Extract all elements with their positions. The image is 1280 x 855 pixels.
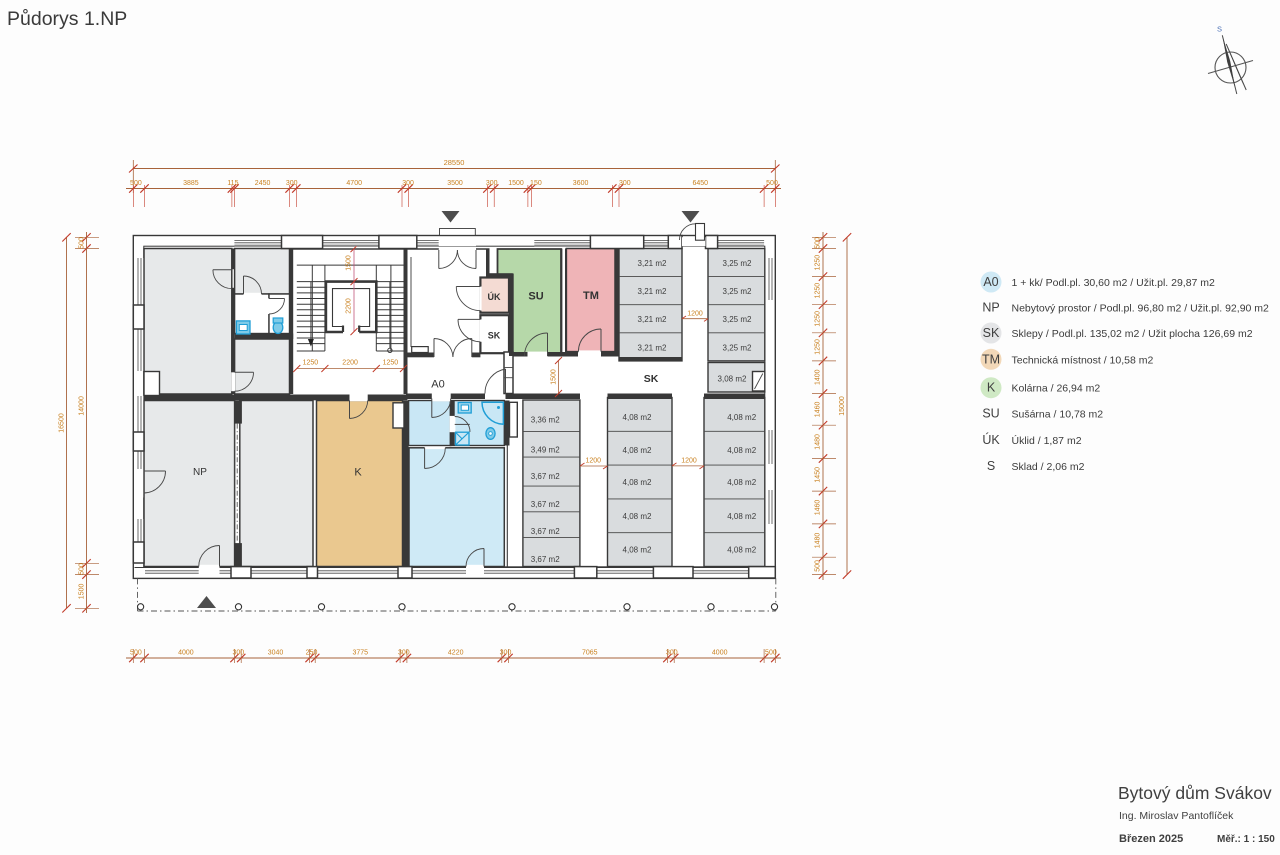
svg-text:Technická místnost / 10,58 m2: Technická místnost / 10,58 m2 [1012,354,1154,366]
svg-text:1250: 1250 [383,360,399,367]
svg-text:ÚK: ÚK [982,432,1000,447]
svg-text:3,25 m2: 3,25 m2 [723,343,752,352]
svg-text:Sklad / 2,06 m2: Sklad / 2,06 m2 [1012,461,1085,473]
svg-text:Nebytový prostor / Podl.pl. 96: Nebytový prostor / Podl.pl. 96,80 m2 / U… [1012,302,1270,314]
svg-text:1200: 1200 [687,311,703,318]
svg-text:250: 250 [306,650,318,657]
svg-text:Sklepy / Podl.pl. 135,02 m2 /: Sklepy / Podl.pl. 135,02 m2 / Užit ploch… [1012,328,1253,340]
svg-text:3,21 m2: 3,21 m2 [638,315,667,324]
svg-text:500: 500 [815,237,822,249]
svg-text:Půdorys 1.NP: Půdorys 1.NP [7,8,127,30]
svg-text:1250: 1250 [815,283,822,299]
svg-text:3,67 m2: 3,67 m2 [531,472,560,481]
svg-text:14000: 14000 [79,396,86,416]
svg-text:4000: 4000 [178,650,194,657]
svg-text:SU: SU [528,291,543,303]
svg-text:4,08 m2: 4,08 m2 [727,413,756,422]
svg-text:A0: A0 [983,275,998,289]
svg-text:Bytový dům Svákov: Bytový dům Svákov [1118,783,1272,803]
svg-text:300: 300 [500,650,512,657]
svg-text:Ing. Miroslav Pantoflíček: Ing. Miroslav Pantoflíček [1119,810,1234,822]
svg-text:1500: 1500 [551,369,558,385]
svg-text:500: 500 [766,180,778,187]
svg-text:500: 500 [130,180,142,187]
svg-text:4,08 m2: 4,08 m2 [727,512,756,521]
svg-text:Měř.: 1 : 150: Měř.: 1 : 150 [1217,834,1275,845]
svg-text:1450: 1450 [815,467,822,483]
svg-text:1500: 1500 [79,584,86,600]
svg-text:3,36 m2: 3,36 m2 [531,415,560,424]
svg-text:4,08 m2: 4,08 m2 [623,413,652,422]
svg-text:3,67 m2: 3,67 m2 [531,527,560,536]
svg-text:3,67 m2: 3,67 m2 [531,555,560,564]
svg-text:4,08 m2: 4,08 m2 [727,446,756,455]
svg-text:Kolárna / 26,94 m2: Kolárna / 26,94 m2 [1012,383,1101,395]
svg-text:3,25 m2: 3,25 m2 [723,259,752,268]
svg-text:4000: 4000 [712,650,728,657]
svg-text:1480: 1480 [815,533,822,549]
svg-text:3,21 m2: 3,21 m2 [638,343,667,352]
svg-text:SK: SK [983,326,1000,340]
svg-text:4,08 m2: 4,08 m2 [727,545,756,554]
svg-text:3,21 m2: 3,21 m2 [638,259,667,268]
svg-text:300: 300 [402,180,414,187]
svg-text:S: S [1217,25,1222,34]
svg-text:4,08 m2: 4,08 m2 [623,512,652,521]
svg-text:2200: 2200 [342,360,358,367]
svg-text:3,49 m2: 3,49 m2 [531,446,560,455]
svg-text:1400: 1400 [815,369,822,385]
svg-text:500: 500 [79,563,86,575]
svg-text:4,08 m2: 4,08 m2 [727,478,756,487]
svg-text:1200: 1200 [586,458,602,465]
svg-text:28550: 28550 [444,158,465,167]
svg-text:1250: 1250 [303,360,319,367]
svg-text:Úklid / 1,87 m2: Úklid / 1,87 m2 [1012,434,1082,447]
svg-text:500: 500 [815,560,822,572]
svg-text:3040: 3040 [268,650,284,657]
svg-text:K: K [987,381,996,395]
svg-text:1460: 1460 [815,402,822,418]
svg-text:4,08 m2: 4,08 m2 [623,478,652,487]
svg-text:SU: SU [982,406,999,420]
svg-text:1500: 1500 [508,180,524,187]
svg-text:1200: 1200 [681,457,697,464]
svg-text:500: 500 [130,650,142,657]
svg-text:500: 500 [765,650,777,657]
svg-text:7065: 7065 [582,650,598,657]
svg-text:TM: TM [583,290,599,302]
svg-text:300: 300 [486,180,498,187]
svg-text:15000: 15000 [839,396,846,416]
svg-text:SK: SK [488,331,501,341]
svg-text:3775: 3775 [353,650,369,657]
svg-text:4220: 4220 [448,650,464,657]
svg-text:300: 300 [398,650,410,657]
svg-text:4,08 m2: 4,08 m2 [623,545,652,554]
svg-text:3,25 m2: 3,25 m2 [723,287,752,296]
svg-text:3885: 3885 [183,180,199,187]
svg-text:1500: 1500 [346,255,353,271]
svg-text:Sušárna / 10,78 m2: Sušárna / 10,78 m2 [1012,408,1104,420]
svg-text:6450: 6450 [693,180,709,187]
svg-text:300: 300 [619,180,631,187]
svg-text:3,67 m2: 3,67 m2 [531,500,560,509]
svg-text:S: S [987,459,995,473]
svg-text:115: 115 [227,180,238,187]
svg-text:TM: TM [982,352,1000,366]
svg-text:1250: 1250 [815,255,822,271]
svg-text:300: 300 [232,650,244,657]
svg-text:300: 300 [286,180,298,187]
svg-text:150: 150 [530,180,542,187]
svg-text:3,21 m2: 3,21 m2 [638,287,667,296]
svg-text:K: K [354,467,362,479]
svg-text:3,08 m2: 3,08 m2 [718,375,747,384]
svg-text:1460: 1460 [815,500,822,516]
svg-text:16500: 16500 [59,413,66,433]
svg-text:3600: 3600 [573,180,589,187]
svg-text:1250: 1250 [815,311,822,327]
svg-text:3,25 m2: 3,25 m2 [723,315,752,324]
svg-text:1480: 1480 [815,434,822,450]
svg-text:300: 300 [666,650,678,657]
svg-text:NP: NP [982,300,999,314]
svg-text:ÚK: ÚK [488,291,501,302]
svg-text:1250: 1250 [815,339,822,355]
svg-text:3500: 3500 [447,180,463,187]
svg-text:Březen 2025: Březen 2025 [1119,833,1183,845]
svg-text:4,08 m2: 4,08 m2 [623,446,652,455]
svg-text:2200: 2200 [346,298,353,314]
svg-text:4700: 4700 [346,180,362,187]
svg-text:A0: A0 [431,379,444,391]
svg-text:SK: SK [644,373,659,385]
svg-text:2450: 2450 [255,180,271,187]
svg-text:500: 500 [79,237,86,249]
svg-text:1 + kk/ Podl.pl. 30,60 m2 / Už: 1 + kk/ Podl.pl. 30,60 m2 / Užit.pl. 29,… [1012,277,1216,289]
svg-text:NP: NP [193,467,207,478]
